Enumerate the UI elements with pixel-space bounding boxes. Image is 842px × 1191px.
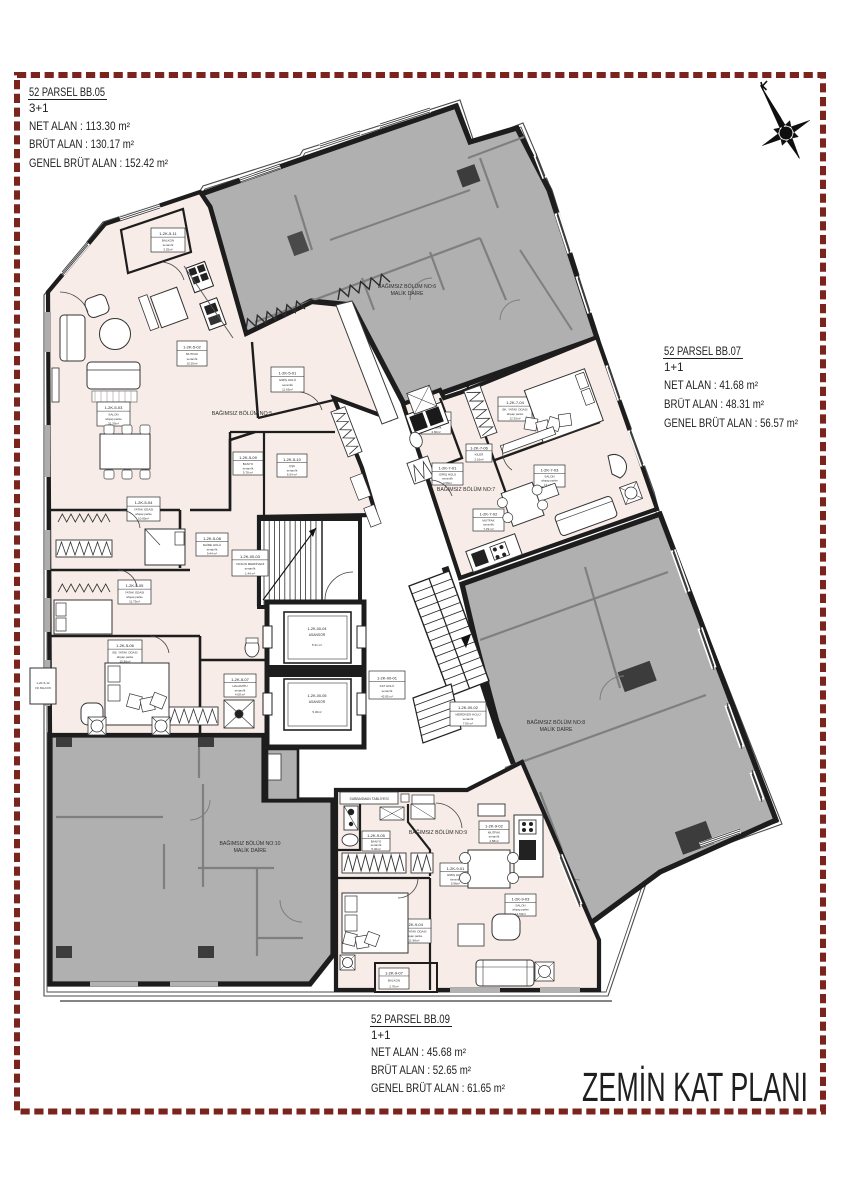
svg-text:1-2K-00-02: 1-2K-00-02 (458, 705, 479, 710)
svg-text:seramİk: seramİk (235, 687, 246, 692)
svg-text:1-2K-5-01: 1-2K-5-01 (279, 371, 298, 376)
svg-text:GENEL BRÜT ALAN : 61.65 m²: GENEL BRÜT ALAN : 61.65 m² (371, 1083, 505, 1095)
svg-text:11.65m²: 11.65m² (282, 388, 293, 392)
svg-text:SUBBASMAN TABLİYESİ: SUBBASMAN TABLİYESİ (349, 796, 388, 801)
svg-text:1-2K-5-03: 1-2K-5-03 (105, 405, 124, 410)
svg-text:BAĞIMSIZ BÖLÜM NO:10: BAĞIMSIZ BÖLÜM NO:10 (219, 840, 280, 847)
svg-text:seramİk: seramİk (243, 465, 254, 470)
svg-text:NET ALAN : 45.68 m²: NET ALAN : 45.68 m² (371, 1047, 466, 1059)
svg-text:7.06 m²: 7.06 m² (463, 722, 473, 726)
svg-text:12.35m²: 12.35m² (509, 417, 520, 421)
svg-text:DAİRE HOLÜ: DAİRE HOLÜ (203, 542, 221, 547)
svg-text:MALİK DAİRE: MALİK DAİRE (540, 726, 573, 733)
svg-text:BAĞIMSIZ BÖLÜM NO:7: BAĞIMSIZ BÖLÜM NO:7 (437, 486, 495, 493)
svg-text:BAĞIMSIZ BÖLÜM NO:5: BAĞIMSIZ BÖLÜM NO:5 (212, 410, 273, 417)
svg-text:ASANSÖR: ASANSÖR (309, 633, 326, 637)
svg-text:BAĞIMSIZ BÖLÜM NO:9: BAĞIMSIZ BÖLÜM NO:9 (409, 829, 467, 836)
svg-text:1-2K-5-09: 1-2K-5-09 (239, 455, 258, 460)
svg-text:1-2K-7-02: 1-2K-7-02 (480, 512, 499, 517)
svg-text:BALKON: BALKON (162, 239, 174, 243)
svg-text:ahşap parke: ahşap parke (117, 655, 134, 659)
svg-text:1-2K-5-02: 1-2K-5-02 (183, 345, 202, 350)
svg-text:5.96m²: 5.96m² (451, 882, 460, 886)
svg-text:3.25m²: 3.25m² (163, 248, 172, 252)
svg-text:1-2K-9-07: 1-2K-9-07 (385, 970, 404, 975)
svg-text:1-2K-00-04: 1-2K-00-04 (308, 627, 327, 631)
svg-text:1-2K-5-11: 1-2K-5-11 (159, 231, 177, 236)
svg-text:BRÜT ALAN : 48.31 m²: BRÜT ALAN : 48.31 m² (664, 399, 764, 411)
svg-text:1+1: 1+1 (664, 362, 684, 374)
svg-text:2.70m²: 2.70m² (389, 984, 398, 988)
svg-text:5.40m²: 5.40m² (371, 847, 380, 851)
svg-text:3+1: 3+1 (29, 103, 49, 115)
svg-text:seramİk: seramİk (187, 356, 198, 361)
svg-text:seramİk: seramİk (245, 566, 256, 571)
svg-text:seramİk: seramİk (463, 716, 474, 721)
svg-text:seramİk: seramİk (287, 467, 298, 472)
svg-text:BK. YATAK ODASI: BK. YATAK ODASI (503, 408, 528, 412)
svg-text:1-2K-9-02: 1-2K-9-02 (485, 824, 504, 829)
svg-text:KAT HOLÜ: KAT HOLÜ (380, 684, 395, 688)
svg-text:ahşap parke: ahşap parke (507, 412, 524, 416)
svg-text:4.60m²: 4.60m² (431, 430, 440, 434)
svg-text:1-2K-5-05: 1-2K-5-05 (126, 583, 145, 588)
svg-text:FR. BALKON: FR. BALKON (35, 686, 51, 690)
svg-text:1-2K-5-10: 1-2K-5-10 (283, 457, 302, 462)
svg-text:GİRİŞ HOLÜ: GİRİŞ HOLÜ (279, 377, 296, 382)
svg-text:BALKON: BALKON (388, 979, 400, 983)
svg-text:4.56m²: 4.56m² (443, 481, 452, 485)
svg-text:1-2K-00-05: 1-2K-00-05 (308, 694, 327, 698)
svg-text:1-2K-7-01: 1-2K-7-01 (439, 466, 458, 471)
svg-text:10.20m²: 10.20m² (186, 362, 197, 366)
svg-text:5.30m²: 5.30m² (312, 710, 321, 714)
svg-text:EB. YATAK ODASI: EB. YATAK ODASI (113, 651, 138, 655)
svg-text:BRÜT ALAN : 52.65 m²: BRÜT ALAN : 52.65 m² (371, 1065, 471, 1077)
svg-text:1-2K-5-06: 1-2K-5-06 (116, 643, 135, 648)
svg-text:1-2K-5-07: 1-2K-5-07 (231, 677, 250, 682)
svg-text:KİLER: KİLER (475, 452, 485, 457)
svg-text:BAĞIMSIZ BÖLÜM NO:8: BAĞIMSIZ BÖLÜM NO:8 (527, 719, 585, 726)
svg-text:11.98m²: 11.98m² (409, 939, 420, 943)
svg-text:4.08 m²: 4.08 m² (235, 693, 245, 697)
svg-text:NET ALAN : 41.68 m²: NET ALAN : 41.68 m² (664, 380, 758, 392)
svg-text:ahşap parke: ahşap parke (135, 512, 152, 516)
svg-text:1-2K-9-03: 1-2K-9-03 (512, 897, 531, 902)
svg-text:1+1: 1+1 (371, 1030, 391, 1042)
svg-text:7.29 m²: 7.29 m² (483, 527, 493, 531)
svg-text:ahşap parke: ahşap parke (126, 595, 143, 599)
svg-text:5.31 m²: 5.31 m² (312, 643, 322, 647)
svg-text:GENEL BRÜT ALAN : 152.42 m²: GENEL BRÜT ALAN : 152.42 m² (29, 158, 168, 170)
svg-text:YATAK ODASI: YATAK ODASI (134, 508, 154, 512)
svg-text:1.44 m²: 1.44 m² (245, 572, 255, 576)
svg-text:MERDİVEN HOLÜ: MERDİVEN HOLÜ (455, 712, 480, 717)
svg-text:BRÜT ALAN : 130.17 m²: BRÜT ALAN : 130.17 m² (29, 139, 134, 151)
svg-text:BAĞIMSIZ BÖLÜM NO:6: BAĞIMSIZ BÖLÜM NO:6 (378, 283, 436, 290)
svg-text:seramİk: seramİk (163, 242, 174, 247)
svg-text:5.78 m²: 5.78 m² (243, 471, 253, 475)
svg-text:1-2K-00-03: 1-2K-00-03 (240, 554, 261, 559)
svg-text:HALAMİTU: HALAMİTU (232, 683, 247, 688)
svg-text:6.54 m²: 6.54 m² (287, 473, 297, 477)
svg-text:YANGIN MERDİVENİ: YANGIN MERDİVENİ (236, 561, 265, 566)
svg-text:52 PARSEL BB.05: 52 PARSEL BB.05 (29, 87, 105, 99)
svg-text:1-2K-7-04: 1-2K-7-04 (506, 400, 525, 405)
svg-text:ahşap parke: ahşap parke (105, 417, 122, 421)
svg-text:4.58m²: 4.58m² (489, 839, 498, 843)
svg-text:1-2K-5-04: 1-2K-5-04 (135, 500, 154, 505)
svg-text:52 PARSEL BB.09: 52 PARSEL BB.09 (371, 1014, 450, 1026)
svg-text:1-2K-7-06: 1-2K-7-06 (470, 445, 489, 450)
svg-text:ZEMİN KAT PLANI: ZEMİN KAT PLANI (582, 1064, 808, 1110)
svg-text:10.80m²: 10.80m² (138, 517, 149, 521)
svg-text:1-2K-5-08: 1-2K-5-08 (203, 536, 222, 541)
svg-text:YATAK ODASI: YATAK ODASI (125, 591, 145, 595)
svg-text:9.44 m²: 9.44 m² (207, 552, 217, 556)
svg-text:NET ALAN : 113.30 m²: NET ALAN : 113.30 m² (29, 121, 130, 133)
svg-text:1-2K-5-12: 1-2K-5-12 (36, 681, 50, 685)
svg-text:MUTFAK: MUTFAK (186, 352, 198, 356)
svg-text:seramİk: seramİk (207, 546, 218, 551)
svg-text:11.75m²: 11.75m² (129, 600, 140, 604)
svg-text:seramİk: seramİk (282, 382, 293, 387)
svg-text:SALON: SALON (108, 413, 118, 417)
svg-text:1-2K-00-01: 1-2K-00-01 (377, 675, 398, 680)
svg-text:GENEL BRÜT ALAN : 56.57 m²: GENEL BRÜT ALAN : 56.57 m² (664, 418, 798, 430)
svg-text:seramİk: seramİk (382, 688, 393, 693)
svg-text:1-2K-9-01: 1-2K-9-01 (447, 866, 466, 871)
svg-text:1-2K-7-03: 1-2K-7-03 (541, 468, 560, 473)
svg-text:ASANSÖR: ASANSÖR (309, 700, 326, 704)
svg-text:42.85 m²: 42.85 m² (381, 694, 393, 698)
svg-text:1-2K-9-05: 1-2K-9-05 (367, 833, 386, 838)
svg-text:2.16m²: 2.16m² (474, 458, 483, 462)
svg-text:MALİK DAİRE: MALİK DAİRE (391, 290, 424, 297)
svg-text:52 PARSEL BB.07: 52 PARSEL BB.07 (664, 346, 741, 358)
svg-text:MALİK DAİRE: MALİK DAİRE (234, 847, 267, 854)
